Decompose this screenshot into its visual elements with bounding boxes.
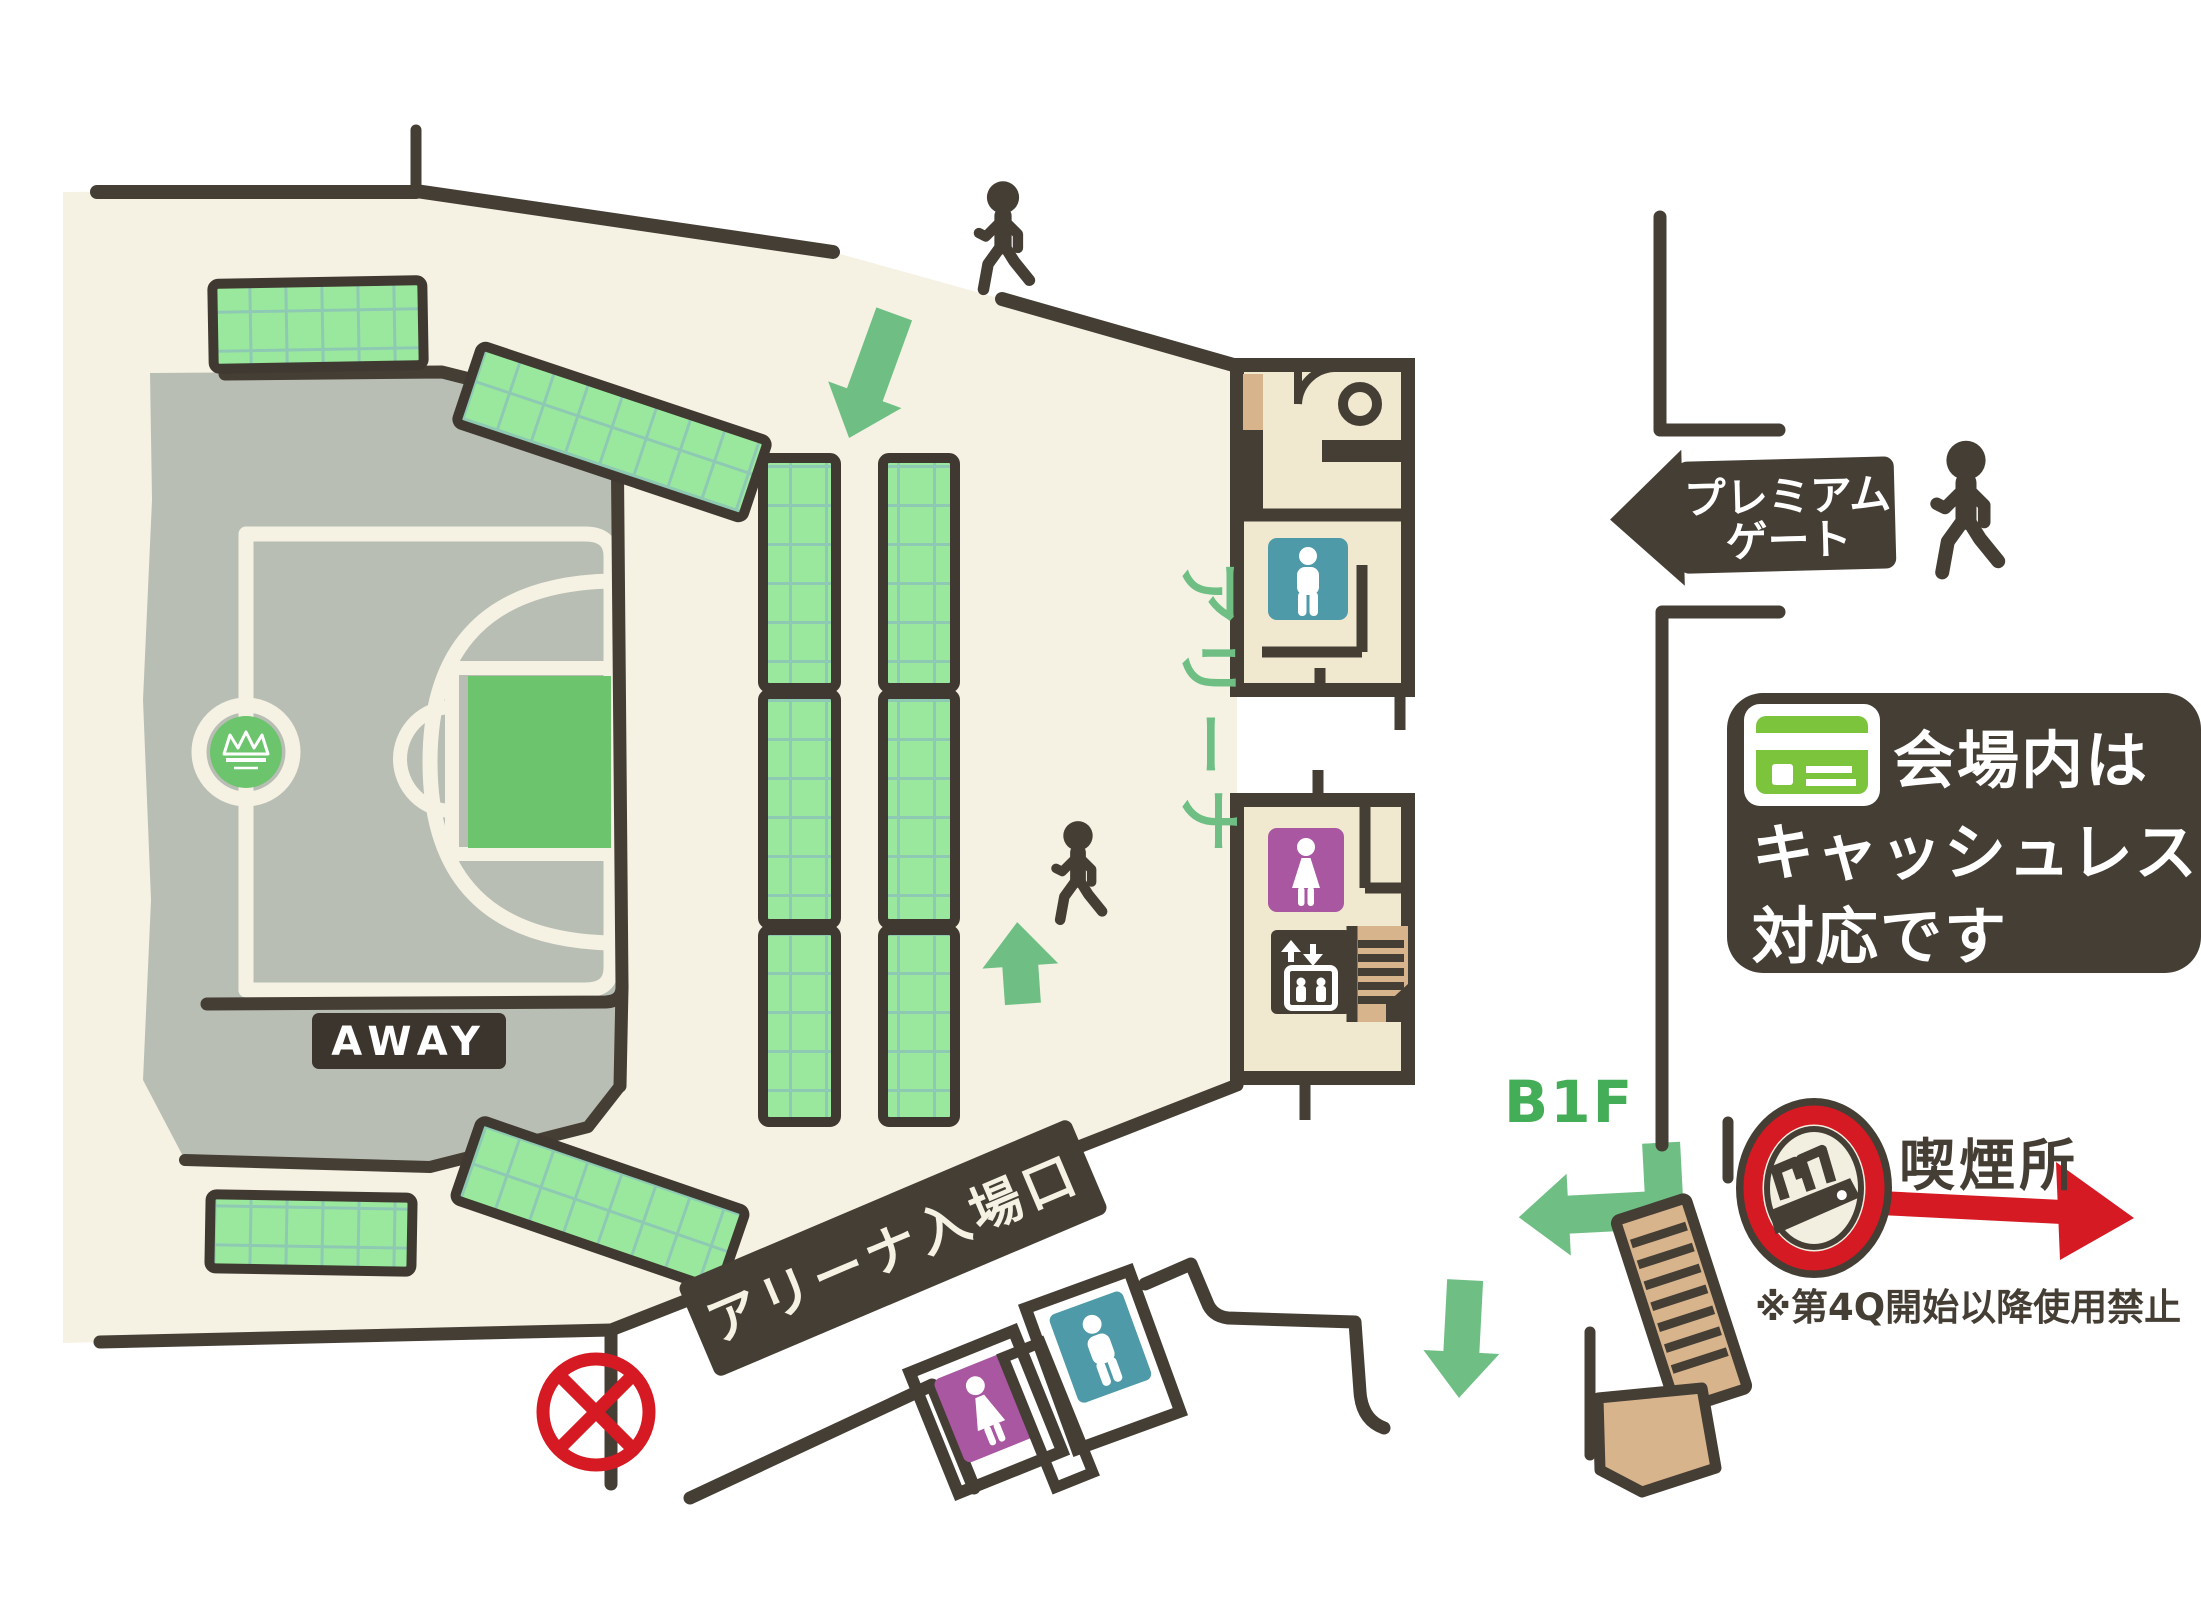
seat-block-col1-b: [763, 694, 836, 924]
seat-block-col1-c: [763, 930, 836, 1122]
restroom-block-lower: [1237, 770, 1408, 1120]
seat-block-col2-b: [883, 694, 955, 924]
seat-block-top-1: [212, 280, 423, 369]
restroom-block-upper: [1237, 365, 1408, 730]
walking-person-icon: [1937, 441, 1999, 573]
smoking-area-label: 喫煙所: [1899, 1134, 2079, 1199]
away-bench-sign: AWAY: [312, 1013, 506, 1069]
smoking-area-sign: 喫煙所 ※第4Q開始以降使用禁止: [1740, 1102, 2181, 1329]
arena-floor-map: AWAY: [0, 0, 2201, 1601]
center-circle: [210, 716, 282, 788]
cashless-line-2: キャッシュレス: [1752, 816, 2199, 889]
premium-gate-sign: プレミアム ゲート: [1608, 444, 1896, 587]
stairs-icon: [1352, 926, 1408, 1022]
cashless-line-3: 対応です: [1752, 900, 2008, 973]
down-arrow-2-icon: [1421, 1278, 1503, 1400]
wall-fill-left: [1237, 430, 1263, 515]
cashless-sign: 会場内は キャッシュレス 対応です: [1727, 693, 2201, 973]
wall-band: [1322, 440, 1408, 462]
seat-block-col2-c: [883, 930, 955, 1122]
premium-gate-label-2: ゲート: [1725, 514, 1852, 566]
floor-map-canvas: AWAY: [0, 0, 2201, 1601]
utility-closet: [1243, 374, 1263, 431]
no-entry-icon: [543, 1359, 649, 1465]
smoking-direction-arrow-icon: [1880, 1203, 2062, 1212]
stairwell-foot: [1598, 1388, 1716, 1492]
smoking-note-label: ※第4Q開始以降使用禁止: [1755, 1286, 2181, 1329]
walking-person-icon: [979, 181, 1030, 289]
court-key-paint: [468, 676, 611, 848]
seat-block-col1-a: [763, 458, 836, 688]
seat-block-col2-a: [883, 458, 955, 688]
premium-gate-arrow-icon: [1608, 450, 1685, 588]
away-label: AWAY: [331, 1019, 487, 1065]
credit-card-icon: [1744, 704, 1880, 806]
elevator-icon: [1271, 930, 1351, 1014]
cashless-line-1: 会場内は: [1893, 724, 2149, 797]
seat-block-bottom-1: [209, 1194, 412, 1272]
arena-area-label: アリーナ: [1170, 560, 1244, 864]
premium-gate-walls: [1660, 217, 1779, 1145]
b1f-label: B1F: [1504, 1068, 1634, 1136]
